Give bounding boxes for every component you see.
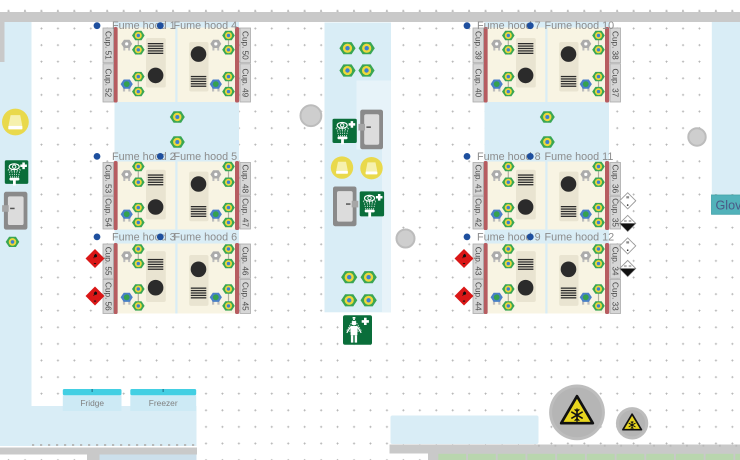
svg-text:Glov: Glov (716, 199, 740, 213)
svg-text:Fume hood 5: Fume hood 5 (174, 151, 238, 163)
svg-text:Cup. 33: Cup. 33 (611, 282, 620, 311)
svg-text:Fume hood 12: Fume hood 12 (545, 231, 615, 243)
svg-text:Fume hood 4: Fume hood 4 (174, 20, 238, 32)
svg-text:Cup. 35: Cup. 35 (611, 198, 620, 227)
svg-text:Cup. 45: Cup. 45 (241, 282, 250, 311)
svg-text:Cup. 48: Cup. 48 (241, 164, 250, 193)
svg-text:Cup. 54: Cup. 54 (104, 198, 113, 227)
svg-text:Cup. 49: Cup. 49 (241, 69, 250, 98)
svg-text:Cup. 43: Cup. 43 (474, 247, 483, 276)
svg-text:Fume hood 10: Fume hood 10 (545, 20, 615, 32)
svg-text:Cup. 39: Cup. 39 (474, 31, 483, 60)
svg-text:Cup. 38: Cup. 38 (611, 31, 620, 60)
svg-text:Cup. 40: Cup. 40 (474, 69, 483, 98)
svg-text:Fume hood 1: Fume hood 1 (112, 20, 176, 32)
svg-text:Freezer: Freezer (149, 398, 178, 408)
svg-text:Cup. 46: Cup. 46 (241, 247, 250, 276)
svg-text:Cup. 37: Cup. 37 (611, 69, 620, 98)
svg-text:Cup. 34: Cup. 34 (611, 247, 620, 276)
svg-text:Cup. 55: Cup. 55 (104, 247, 113, 276)
svg-text:Cup. 56: Cup. 56 (104, 282, 113, 311)
svg-text:Fume hood 2: Fume hood 2 (112, 151, 176, 163)
svg-text:Fridge: Fridge (80, 398, 104, 408)
svg-text:Fume hood 3: Fume hood 3 (112, 231, 176, 243)
svg-text:Cup. 41: Cup. 41 (474, 164, 483, 193)
svg-text:Cup. 42: Cup. 42 (474, 198, 483, 227)
svg-text:Cup. 44: Cup. 44 (474, 282, 483, 311)
svg-text:Cup. 50: Cup. 50 (241, 31, 250, 60)
svg-text:Cup. 36: Cup. 36 (611, 164, 620, 193)
svg-text:Cup. 53: Cup. 53 (104, 164, 113, 193)
svg-text:Cup. 51: Cup. 51 (104, 31, 113, 60)
svg-text:Cup. 47: Cup. 47 (241, 198, 250, 227)
svg-text:Fume hood 6: Fume hood 6 (174, 231, 238, 243)
svg-text:Fume hood 11: Fume hood 11 (545, 151, 614, 163)
svg-text:Cup. 52: Cup. 52 (104, 69, 113, 98)
